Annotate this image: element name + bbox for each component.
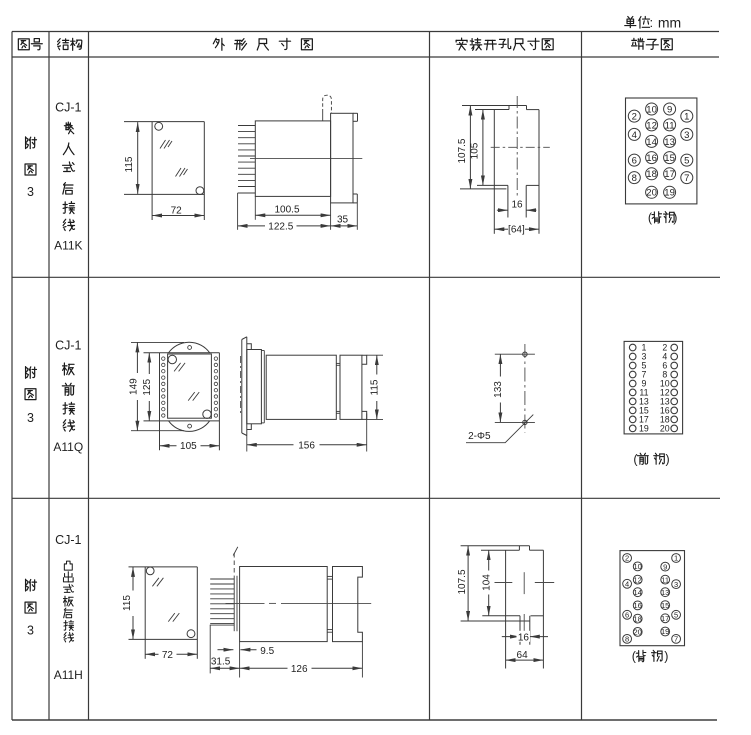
svg-text:12: 12 [634,575,642,584]
svg-text:14: 14 [634,588,642,597]
svg-text:16: 16 [634,601,642,610]
svg-text:4: 4 [632,130,637,141]
svg-text:2: 2 [625,554,629,563]
svg-text:11: 11 [665,120,675,131]
svg-text:8: 8 [625,635,629,644]
svg-text:9: 9 [663,562,667,571]
svg-text:16: 16 [518,632,530,643]
svg-text:20: 20 [660,424,670,434]
svg-text:3: 3 [674,580,678,589]
svg-text:A11Q: A11Q [53,440,83,454]
svg-text:4: 4 [625,580,629,589]
svg-text:): ) [664,650,668,664]
svg-text:CJ-1: CJ-1 [55,533,81,547]
svg-text:19: 19 [664,188,675,199]
svg-text:6: 6 [625,611,629,620]
svg-text:3: 3 [27,411,34,425]
svg-text:107.5: 107.5 [457,569,468,594]
svg-text:115: 115 [370,379,381,395]
svg-text:12: 12 [646,120,657,131]
svg-text:105: 105 [470,142,481,159]
svg-text:125: 125 [142,379,153,396]
svg-text:14: 14 [646,137,657,148]
svg-text:2: 2 [632,112,637,123]
svg-text:16: 16 [511,199,523,210]
svg-text:9.5: 9.5 [260,646,274,657]
svg-text:5: 5 [684,156,689,167]
svg-text:15: 15 [664,153,675,164]
svg-text:17: 17 [661,614,669,623]
svg-text:8: 8 [632,173,637,184]
svg-text:3: 3 [27,185,34,199]
svg-text:9: 9 [667,104,672,115]
svg-text:3: 3 [27,624,34,638]
svg-text:1: 1 [684,112,689,123]
svg-text:18: 18 [646,169,657,180]
svg-text:5: 5 [674,611,678,620]
svg-text:19: 19 [639,424,649,434]
svg-text:15: 15 [661,601,669,610]
svg-text:13: 13 [661,588,669,597]
svg-text:): ) [666,453,670,467]
svg-text:17: 17 [664,169,675,180]
svg-text:104: 104 [481,574,492,591]
svg-text:7: 7 [674,635,678,644]
svg-text:2-Φ5: 2-Φ5 [468,431,491,442]
svg-text:20: 20 [634,628,642,637]
svg-text:13: 13 [664,137,675,148]
svg-text:A11H: A11H [54,668,83,682]
svg-text:122.5: 122.5 [268,221,293,232]
svg-text:149: 149 [129,378,140,395]
svg-text:6: 6 [632,156,637,167]
svg-text:20: 20 [646,188,657,199]
svg-text:31.5: 31.5 [211,656,231,667]
svg-text:mm: mm [658,15,681,31]
svg-text:105: 105 [180,441,197,452]
svg-text:CJ-1: CJ-1 [55,339,81,353]
svg-text:): ) [673,211,677,225]
svg-text:35: 35 [337,215,349,226]
svg-text:115: 115 [124,156,135,172]
svg-text:100.5: 100.5 [274,204,299,215]
svg-text:18: 18 [634,614,642,623]
svg-text:64: 64 [517,650,529,661]
svg-text:107.5: 107.5 [457,138,468,163]
svg-text:72: 72 [171,206,183,217]
svg-text::: : [649,15,653,30]
svg-text:19: 19 [661,627,669,636]
svg-text:10: 10 [646,104,657,115]
svg-text:1: 1 [674,554,678,563]
svg-text:10: 10 [634,562,642,571]
svg-text:156: 156 [298,440,315,451]
svg-text:16: 16 [646,153,657,164]
svg-text:133: 133 [493,381,504,398]
svg-text:A11K: A11K [54,238,82,252]
svg-text:[64]: [64] [508,225,525,236]
svg-text:11: 11 [661,575,669,584]
svg-text:115: 115 [122,595,133,611]
svg-text:3: 3 [684,130,689,141]
svg-text:72: 72 [162,650,174,661]
svg-text:126: 126 [291,664,308,675]
svg-text:7: 7 [684,173,689,184]
svg-text:CJ-1: CJ-1 [55,101,81,115]
